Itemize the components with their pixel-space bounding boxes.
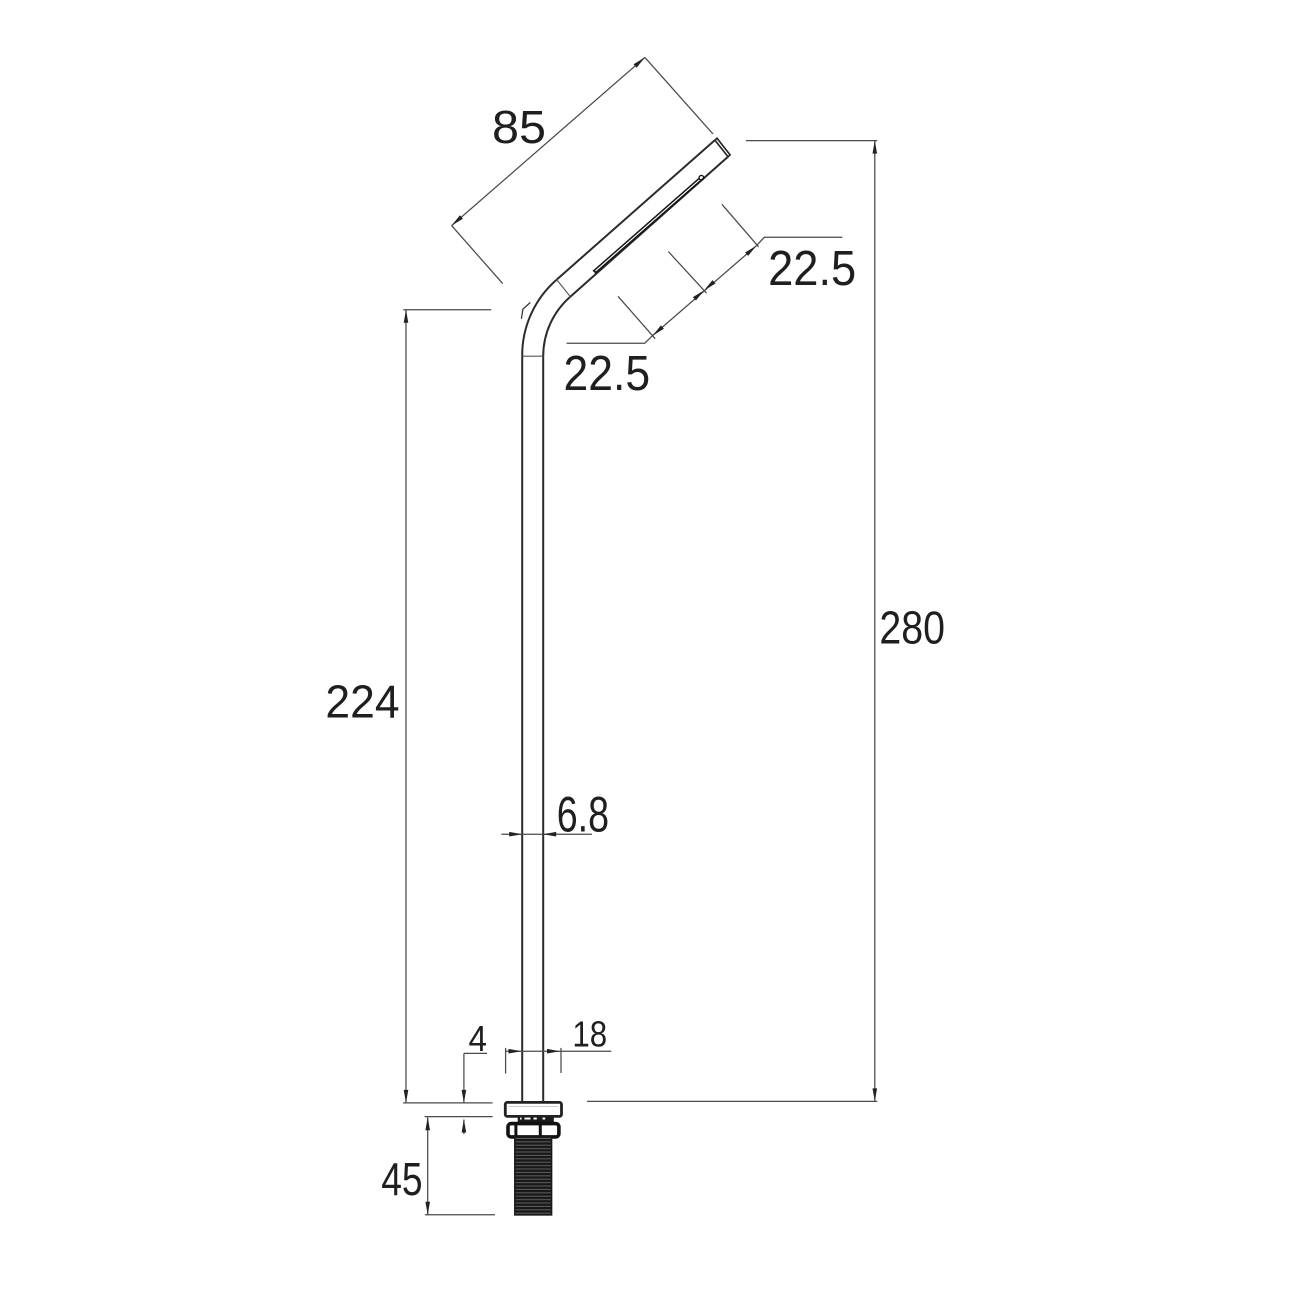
svg-text:22.5: 22.5 [768, 241, 856, 296]
svg-text:224: 224 [325, 675, 399, 727]
svg-text:4: 4 [469, 1018, 488, 1059]
svg-text:85: 85 [492, 101, 546, 153]
svg-text:280: 280 [879, 602, 945, 654]
svg-text:45: 45 [381, 1153, 422, 1205]
svg-text:22.5: 22.5 [564, 346, 651, 401]
svg-text:6.8: 6.8 [557, 787, 609, 843]
svg-text:18: 18 [572, 1014, 607, 1055]
